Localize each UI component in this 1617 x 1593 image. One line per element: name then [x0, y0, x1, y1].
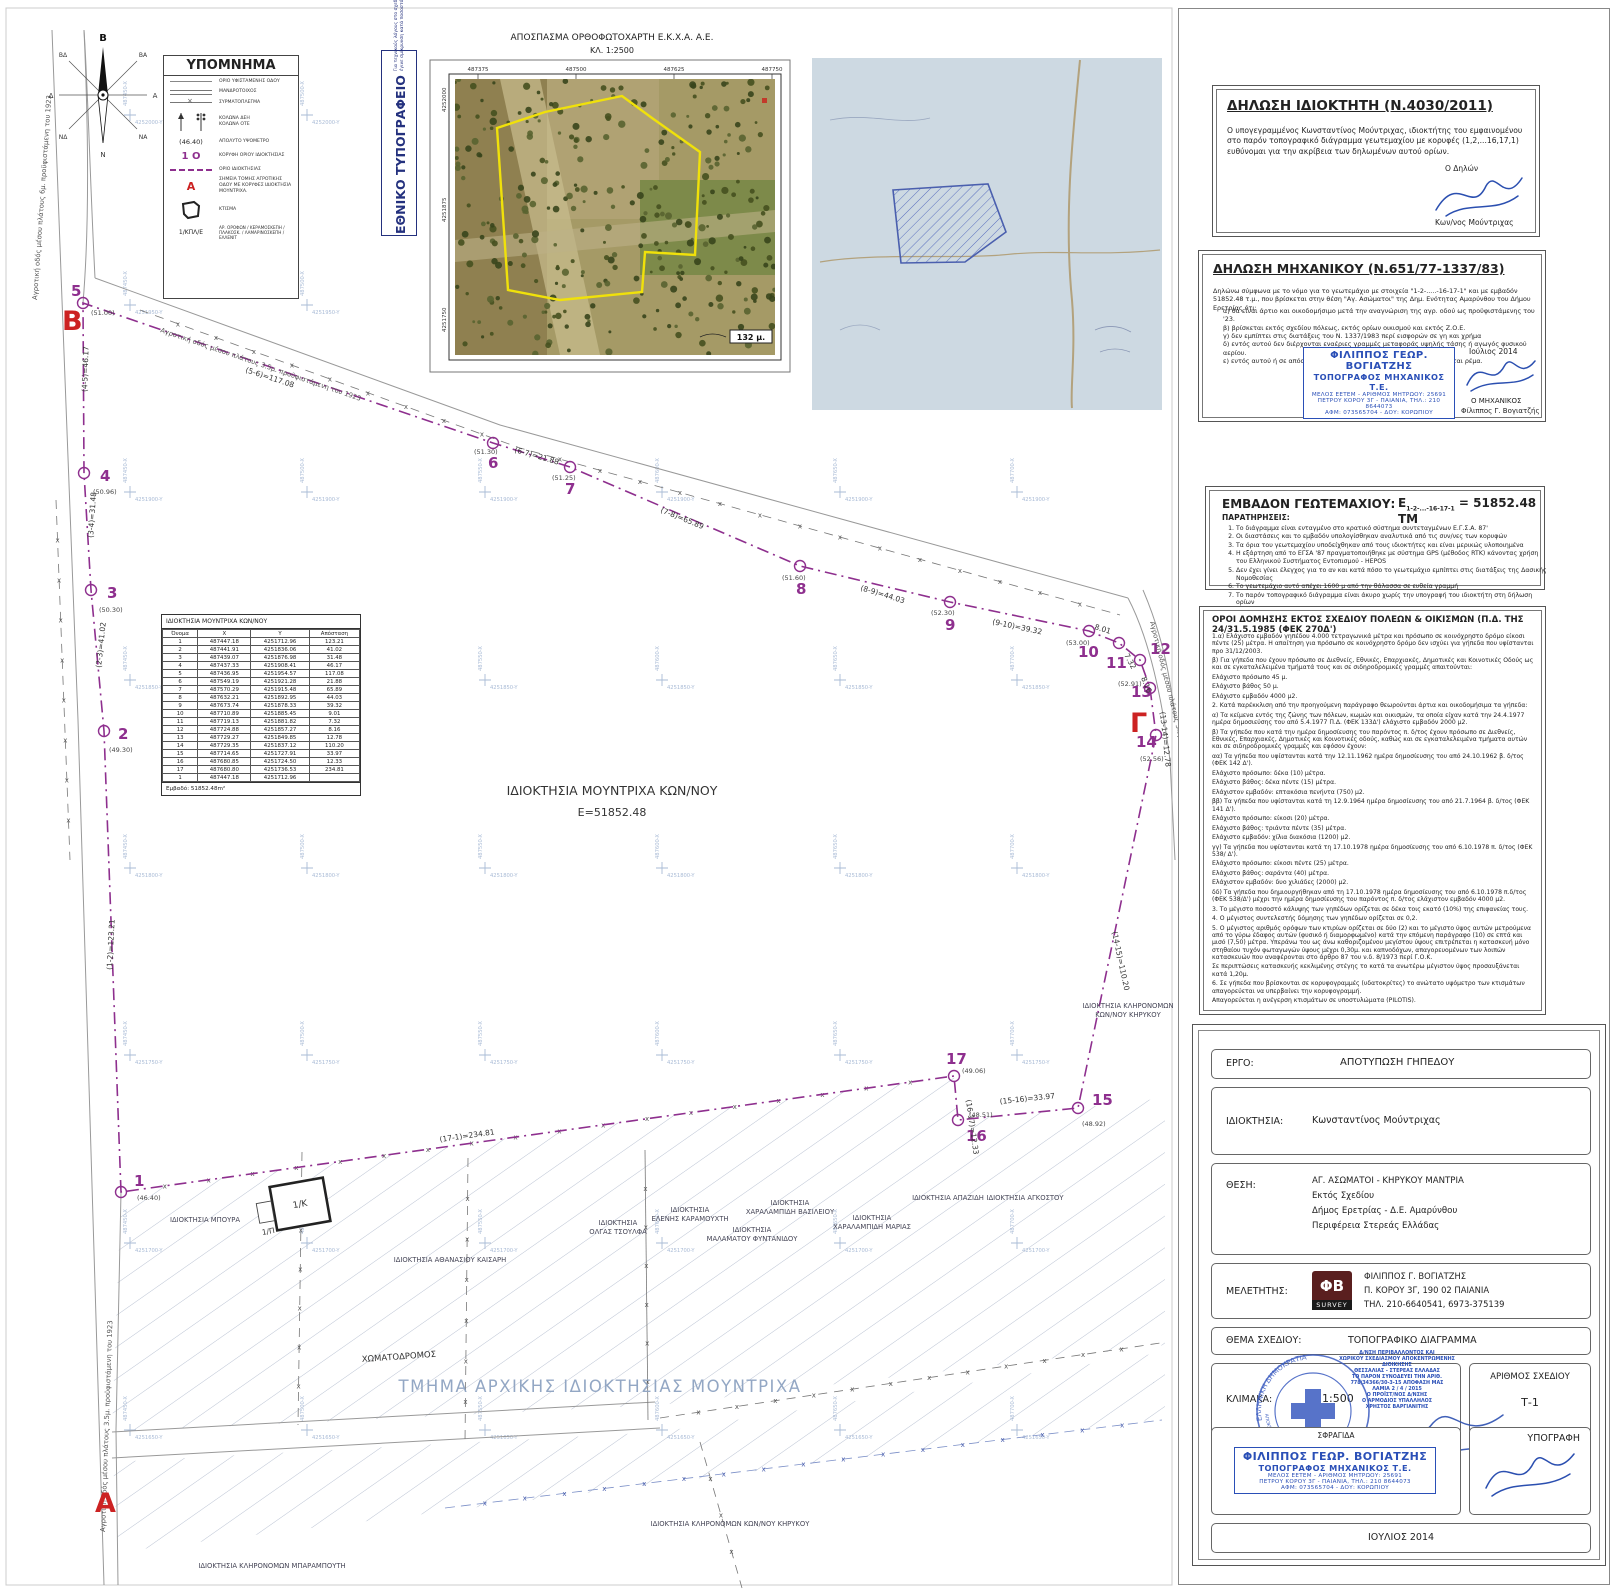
grid-x-label: 487700-X: [1010, 646, 1016, 671]
grid-y-label: 4251850-Y: [667, 685, 695, 691]
fence-x-mark: x: [644, 1262, 648, 1270]
grid-x-label: 487600-X: [655, 646, 661, 671]
neighbor-parcel-label: ΙΔΙΟΚΤΗΣΙΑ ΑΠΑΖΙΔΗ: [912, 1194, 984, 1202]
grid-x-label: 487650-X: [833, 1021, 839, 1046]
coord-table-cell: 17: [163, 766, 198, 774]
fence-x-mark: x: [758, 511, 762, 519]
fence-x-mark: x: [1080, 1426, 1084, 1434]
building-terms-paragraph: Ελάχιστο βάθος: τριάντα πέντε (35) μέτρα…: [1212, 825, 1536, 832]
fence-x-mark: x: [638, 478, 642, 486]
coord-table-cell: 15: [163, 750, 198, 758]
fence-x-mark: x: [722, 1470, 726, 1478]
grid-x-label: 487500-X: [300, 1021, 306, 1046]
coord-table-cell: 21.88: [309, 678, 359, 686]
fence-x-mark: x: [998, 578, 1002, 586]
fence-x-mark: x: [480, 431, 484, 439]
grid-y-label: 4251700-Y: [490, 1248, 518, 1254]
fence-x-mark: x: [602, 1485, 606, 1493]
vertex-elevation: (49.30): [109, 746, 133, 754]
grid-x-label: 487550-X: [478, 458, 484, 483]
grid-x-label: 487450-X: [123, 646, 129, 671]
compass-se-label: ΝΑ: [139, 134, 148, 141]
utility-pole-icon: [168, 111, 214, 133]
fence-x-mark: x: [878, 545, 882, 553]
coord-table-row: 17487680.804251736.53234.81: [163, 766, 360, 774]
fence-x-mark: x: [298, 1305, 302, 1313]
photo-x-tick: 487750: [762, 67, 783, 73]
vertex-number: 17: [946, 1050, 967, 1068]
coord-table-cell: 31.48: [309, 654, 359, 662]
grid-y-label: 4251800-Y: [490, 873, 518, 879]
vertex-elevation: (51.60): [782, 574, 806, 582]
legend-row: ΟΡΙΟ ΙΔΙΟΚΤΗΣΙΑΣ: [164, 164, 298, 175]
grid-x-label: 487450-X: [123, 1021, 129, 1046]
grid-x-label: 487550-X: [478, 1209, 484, 1234]
coord-table-row: 3487439.074251876.9831.48: [163, 654, 360, 662]
coord-table-cell: 4251837.12: [251, 742, 309, 750]
project-title: ΑΠΟΤΥΠΩΣΗ ΓΗΠΕΔΟΥ: [1340, 1057, 1454, 1068]
coord-table-cell: 487729.27: [198, 734, 251, 742]
building-terms-paragraph: 1.α) Ελάχιστο εμβαδόν γηπέδου 4.000 τετρ…: [1212, 633, 1536, 655]
coord-table-cell: 1: [163, 638, 198, 646]
building-terms-paragraph: Ελάχιστο εμβαδόν 4000 μ2.: [1212, 693, 1536, 700]
fence-x-mark: x: [297, 1344, 301, 1352]
aerial-photo: [453, 77, 777, 357]
coord-table-cell: 4251921.28: [251, 678, 309, 686]
coord-table-cell: 8.16: [309, 726, 359, 734]
coord-table-cell: 487729.35: [198, 742, 251, 750]
fence-x-mark: x: [442, 417, 446, 425]
fence-x-mark: x: [65, 777, 69, 785]
subject-value: ΤΟΠΟΓΡΑΦΙΚΟ ΔΙΑΓΡΑΜΜΑ: [1348, 1335, 1477, 1346]
fence-x-mark: x: [921, 1446, 925, 1454]
grid-y-label: 4251700-Y: [135, 1248, 163, 1254]
coord-table-cell: 487441.91: [198, 646, 251, 654]
building-terms-paragraph: Σε περιπτώσεις κατασκευής κεκλιμένης στέ…: [1212, 963, 1536, 978]
fence-x-mark: x: [464, 1357, 468, 1365]
vertex-circle: [565, 462, 576, 473]
legend-row: ΣΥΡΜΑΤΟΠΛΕΓΜΑ: [164, 97, 298, 108]
fence-x-mark: x: [1043, 1357, 1047, 1365]
legend-row: ΟΡΙΟ ΥΦΙΣΤΑΜΕΝΗΣ ΟΔΟΥ: [164, 76, 298, 87]
compass-ne-label: ΒΑ: [139, 52, 148, 59]
fence-x-mark: x: [252, 348, 256, 356]
vertex-elevation: (51.30): [474, 448, 498, 456]
owner-declaration-title: ΔΗΛΩΣΗ ΙΔΙΟΚΤΗΤΗ (Ν.4030/2011): [1227, 98, 1493, 114]
grid-x-label: 487600-X: [655, 458, 661, 483]
vertex-elevation: (49.06): [962, 1067, 986, 1075]
coord-table-cell: 487710.89: [198, 710, 251, 718]
grid-y-label: 4251750-Y: [135, 1060, 163, 1066]
building-terms-paragraph: 2. Κατά παρέκκλιση από την προηγούμενη π…: [1212, 702, 1536, 709]
coord-table-cell: 1: [163, 774, 198, 782]
coord-table-row: 11487719.134251881.827.32: [163, 718, 360, 726]
neighbor-parcel-label: ΙΔΙΟΚΤΗΣΙΑ ΑΘΑΝΑΣΙΟΥ ΚΑΙΣΑΡΗ: [394, 1256, 506, 1264]
issue-date: ΙΟΥΛΙΟΣ 2014: [1212, 1532, 1590, 1543]
coord-table-cell: 487719.13: [198, 718, 251, 726]
fence-x-mark: x: [798, 522, 802, 530]
building-code-sample: 1/ΚΠΛ/Ε: [168, 229, 214, 236]
parcel-area: Ε=51852.48: [578, 806, 647, 819]
fence-x-mark: x: [523, 1495, 527, 1503]
fence-x-mark: x: [958, 567, 962, 575]
coord-table-cell: 4251712.96: [251, 638, 309, 646]
coord-table-cell: 4251857.27: [251, 726, 309, 734]
distance-label: (15-16)=33.97: [999, 1091, 1055, 1106]
grid-y-label: 4251750-Y: [667, 1060, 695, 1066]
legend-row: 1 Ο ΚΟΡΥΦΗ ΟΡΙΟΥ ΙΔΙΟΚΤΗΣΙΑΣ: [164, 148, 298, 164]
location-line: ΑΓ. ΑΣΩΜΑΤΟΙ - ΚΗΡΥΚΟΥ ΜΑΝΤΡΙΑ: [1312, 1174, 1464, 1189]
coord-table-cell: 487447.18: [198, 638, 251, 646]
legend-row: Α ΣΗΜΕΙΑ ΤΟΜΗΣ ΑΓΡΟΤΙΚΗΣ ΟΔΟΥ ΜΕ ΚΟΡΥΦΕΣ…: [164, 175, 298, 197]
fence-x-mark: x: [1038, 589, 1042, 597]
owner-row: ΙΔΙΟΚΤΗΣΙΑ: Κωνσταντίνος Μούντριχας: [1211, 1087, 1591, 1155]
fence-x-mark: x: [404, 403, 408, 411]
grid-y-label: 4251650-Y: [667, 1435, 695, 1441]
coord-table-cell: 11: [163, 718, 198, 726]
neighbor-parcel-label: ΙΔΙΟΚΤΗΣΙΑ ΚΛΗΡΟΝΟΜΩΝ ΜΠΑΡΑΜΠΟΥΤΗ: [198, 1562, 345, 1570]
vertex-elevation: (51.00): [91, 309, 115, 317]
building-icon: [168, 200, 214, 220]
vertex-number: 1: [134, 1172, 144, 1190]
grid-y-label: 4252000-Y: [312, 120, 340, 126]
legend-row: ΜΑΝΔΡΟΤΟΙΧΟΣ: [164, 87, 298, 98]
grid-y-label: 4251950-Y: [312, 310, 340, 316]
fence-x-mark: x: [1078, 600, 1082, 608]
observation-note: Το παρόν τοπογραφικό διάγραμμα είναι άκυ…: [1236, 592, 1548, 608]
owner-declaration-body: Ο υπογεγραμμένος Κωνσταντίνος Μούντριχας…: [1227, 126, 1527, 157]
fence-x-mark: x: [163, 1182, 167, 1190]
old-map-panel: [812, 58, 1162, 410]
fence-x-mark: x: [328, 376, 332, 384]
coord-table-cell: 487680.80: [198, 766, 251, 774]
section-letter-G: Γ: [1130, 708, 1147, 739]
coord-table-cell: 44.03: [309, 694, 359, 702]
fence-x-mark: x: [465, 1195, 469, 1203]
fence-x-mark: x: [678, 489, 682, 497]
coord-table-cell: 487439.07: [198, 654, 251, 662]
grid-x-label: 487700-X: [1010, 458, 1016, 483]
notes-title: ΠΑΡΑΤΗΡΗΣΕΙΣ:: [1222, 513, 1290, 522]
coord-table-cell: 4: [163, 662, 198, 670]
legend-row: 1/ΚΠΛ/Ε ΑΡ. ΟΡΟΦΩΝ / ΚΕΡΑΜΟΣΚΕΠΗ / ΠΛΑΚΟ…: [164, 222, 298, 243]
fence-x-mark: x: [645, 1339, 649, 1347]
engineer-declaration-item: β) βρίσκεται εκτός σχεδίου πόλεως, εκτός…: [1223, 324, 1541, 332]
building-terms-paragraph: Ελάχιστο βάθος: σαράντα (40) μέτρα.: [1212, 870, 1536, 877]
coord-table-row: 1487447.184251712.96123.21: [163, 638, 360, 646]
coord-table-cell: 4251954.57: [251, 670, 309, 678]
grid-y-label: 4251650-Y: [1022, 1435, 1050, 1441]
coord-table-header-cell: Y: [251, 630, 309, 638]
vertex-number: 5: [71, 282, 81, 300]
grid-y-label: 4251800-Y: [135, 873, 163, 879]
coord-table-cell: 39.32: [309, 702, 359, 710]
vertex-elevation: (52.30): [931, 609, 955, 617]
engineer-signature: [1461, 351, 1541, 395]
coord-table-cell: 487680.85: [198, 758, 251, 766]
photo-scalebar-label: 132 μ.: [737, 333, 765, 342]
coord-table-cell: 4251836.06: [251, 646, 309, 654]
coord-table-cell: 4251712.96: [251, 774, 309, 782]
fence-x-mark: x: [463, 1398, 467, 1406]
building-terms-body: 1.α) Ελάχιστο εμβαδόν γηπέδου 4.000 τετρ…: [1212, 633, 1536, 1007]
legend-row: ΚΟΛΩΝΑ ΔΕΗΚΟΛΩΝΑ ΟΤΕ: [164, 108, 298, 135]
coord-table-row: 16487680.854251724.5012.33: [163, 758, 360, 766]
grid-y-label: 4251750-Y: [490, 1060, 518, 1066]
coord-table-cell: 8: [163, 694, 198, 702]
coord-table-cell: 487549.19: [198, 678, 251, 686]
engineer-declaration-item: γ) δεν εμπίπτει στις διατάξεις του Ν. 13…: [1223, 332, 1541, 340]
building-terms-paragraph: 3. Το μέγιστο ποσοστό κάλυψης των γηπέδω…: [1212, 906, 1536, 913]
engineer-signer-label: Ο ΜΗΧΑΝΙΚΟΣ: [1471, 397, 1521, 405]
fence-x-mark: x: [708, 1475, 712, 1483]
coord-table-cell: 9: [163, 702, 198, 710]
fence-x-mark: x: [296, 1383, 300, 1391]
fence-x-mark: x: [718, 500, 722, 508]
coord-table-row: 2487441.914251836.0641.02: [163, 646, 360, 654]
coord-table-cell: 4251915.48: [251, 686, 309, 694]
coord-table-cell: 4251881.82: [251, 718, 309, 726]
date-box: ΙΟΥΛΙΟΣ 2014: [1211, 1523, 1591, 1553]
coord-table-cell: 123.21: [309, 638, 359, 646]
neighbor-parcel-label: ΙΔΙΟΚΤΗΣΙΑ ΚΛΗΡΟΝΟΜΩΝ: [1082, 1002, 1173, 1010]
fence-x-mark: x: [773, 1397, 777, 1405]
coord-table-header-cell: Απόσταση: [309, 630, 359, 638]
compass-south-label: Ν: [100, 151, 105, 159]
neighbor-parcel-label: ΙΔΙΟΚΤΗΣΙΑ: [671, 1206, 710, 1214]
grid-x-label: 487450-X: [123, 834, 129, 859]
building-terms-paragraph: γγ) Τα γήπεδα που υφίστανται κατά τη 17.…: [1212, 844, 1536, 859]
grid-x-label: 487550-X: [478, 1021, 484, 1046]
grid-y-label: 4251650-Y: [135, 1435, 163, 1441]
photo-red-mark: [762, 98, 767, 103]
coord-table-cell: 487447.18: [198, 774, 251, 782]
photo-y-tick: 4251875: [442, 197, 448, 222]
grid-y-label: 4251650-Y: [312, 1435, 340, 1441]
photo-x-tick: 487375: [468, 67, 489, 73]
coord-table-cell: 487724.88: [198, 726, 251, 734]
observation-note: Η εξάρτηση από το ΕΓΣΑ '87 πραγματοποιήθ…: [1236, 550, 1548, 566]
grid-x-label: 487700-X: [1010, 1021, 1016, 1046]
fence-x-mark: x: [645, 1301, 649, 1309]
fence-x-mark: x: [290, 362, 294, 370]
distance-label: (4-5)=46.17: [80, 346, 91, 392]
fence-x-mark: x: [801, 1461, 805, 1469]
fence-x-mark: x: [1040, 1431, 1044, 1439]
surveyor-row: ΜΕΛΕΤΗΤΗΣ: ΦΒ SURVEY ΦΙΛΙΠΠΟΣ Γ. ΒΟΓΙΑΤΖ…: [1211, 1263, 1591, 1319]
neighbor-parcel-label: ΙΔΙΟΚΤΗΣΙΑ ΚΛΗΡΟΝΟΜΩΝ ΚΩΝ/ΝΟΥ ΚΗΡΥΚΟΥ: [651, 1520, 811, 1528]
section-letter-sample: Α: [168, 180, 214, 193]
photo-y-tick: 4252000: [442, 87, 448, 112]
fence-x-mark: x: [598, 467, 602, 475]
fence-x-mark: x: [729, 1548, 733, 1556]
area-title: ΕΜΒΑΔΟΝ ΓΕΩΤΕΜΑΧΙΟΥ:: [1222, 497, 1395, 511]
building-terms-paragraph: 4. Ο μέγιστος συντελεστής δόμησης των γη…: [1212, 915, 1536, 922]
grid-y-label: 4251900-Y: [312, 497, 340, 503]
stamp-box: ΣΦΡΑΓΙΔΑ ΦΙΛΙΠΠΟΣ ΓΕΩΡ. ΒΟΓΙΑΤΖΗΣ ΤΟΠΟΓΡ…: [1211, 1427, 1461, 1515]
fence-x-mark: x: [850, 1386, 854, 1394]
observation-note: Δεν έχει γίνει έλεγχος για το αν και κατ…: [1236, 567, 1548, 583]
printing-note-title: ΕΘΝΙΚΟ ΤΥΠΟΓΡΑΦΕΙΟ: [393, 75, 408, 234]
distance-label: (2-3)=41.02: [94, 621, 108, 668]
building-terms-paragraph: ββ) Τα γήπεδα που υφίστανται κατά τη 12.…: [1212, 798, 1536, 813]
grid-x-label: 487600-X: [655, 834, 661, 859]
grid-y-label: 4252000-Y: [135, 120, 163, 126]
coord-table-cell: 117.08: [309, 670, 359, 678]
location-line: Εκτός Σχεδίου: [1312, 1189, 1464, 1204]
engineer-stamp: ΦΙΛΙΠΠΟΣ ΓΕΩΡ. ΒΟΓΙΑΤΖΗΣ ΤΟΠΟΓΡΑΦΟΣ ΜΗΧΑ…: [1303, 347, 1455, 419]
building-terms-paragraph: αα) Τα γήπεδα που υφίστανται κατά την 12…: [1212, 753, 1536, 768]
vertex-number: 7: [565, 480, 575, 498]
fence-x-mark: x: [483, 1500, 487, 1508]
coord-table-row: 14487729.354251837.12110.20: [163, 742, 360, 750]
coord-table-cell: 7: [163, 686, 198, 694]
topographic-sheet: 487450-X4252000-Y487450-X4251950-Y487450…: [0, 0, 1617, 1593]
area-formula: Ε1-2-...-16-17-1 = 51852.48 ΤΜ: [1398, 496, 1544, 526]
notes-list: Το διάγραμμα είναι ενταγμένο στο κρατικό…: [1236, 525, 1548, 608]
elevation-sample: (46.40): [168, 138, 214, 146]
engineer-declaration: ΔΗΛΩΣΗ ΜΗΧΑΝΙΚΟΥ (Ν.651/77-1337/83) Δηλώ…: [1198, 250, 1546, 422]
coord-table-header-cell: Όνομα: [163, 630, 198, 638]
coord-table-cell: 33.97: [309, 750, 359, 758]
coord-table-cell: 5: [163, 670, 198, 678]
coord-table-cell: 14: [163, 742, 198, 750]
fence-x-mark: x: [642, 1480, 646, 1488]
fence-x-mark: x: [366, 389, 370, 397]
grid-y-label: 4251850-Y: [490, 685, 518, 691]
location-row: ΘΕΣΗ: ΑΓ. ΑΣΩΜΑΤΟΙ - ΚΗΡΥΚΟΥ ΜΑΝΤΡΙΑΕκτό…: [1211, 1163, 1591, 1255]
coord-table-row: 8487632.214251892.9544.03: [163, 694, 360, 702]
fence-x-mark: x: [682, 1475, 686, 1483]
coordinate-table-title: ΙΔΙΟΚΤΗΣΙΑ ΜΟΥΝΤΡΙΧΑ ΚΩΝ/ΝΟΥ: [162, 615, 360, 629]
building-terms-paragraph: Απαγορεύεται η ανέγερση κτισμάτων σε υπο…: [1212, 997, 1536, 1004]
grid-x-label: 487600-X: [655, 1021, 661, 1046]
grid-x-label: 487700-X: [1010, 834, 1016, 859]
coord-table-header-cell: X: [198, 630, 251, 638]
grid-x-label: 487600-X: [655, 1396, 661, 1421]
building-terms-paragraph: β) Για γήπεδα που έχουν πρόσωπο σε Διεθν…: [1212, 657, 1536, 672]
observation-note: Το διάγραμμα είναι ενταγμένο στο κρατικό…: [1236, 525, 1548, 533]
grid-x-label: 487700-X: [1010, 1396, 1016, 1421]
compass-west-label: Δ: [49, 92, 54, 100]
coord-table-row: 5487436.954251954.57117.08: [163, 670, 360, 678]
fence-x-mark: x: [841, 1456, 845, 1464]
coord-table-cell: 3: [163, 654, 198, 662]
engineer-signer-name: Φίλιππος Γ. Βογιατζής: [1461, 407, 1540, 415]
fence-x-mark: x: [62, 697, 66, 705]
coord-table-cell: 4251724.50: [251, 758, 309, 766]
owner-signer-name: Κων/νος Μούντριχας: [1435, 218, 1514, 227]
grid-x-label: 487500-X: [300, 1396, 306, 1421]
grid-x-label: 487500-X: [300, 271, 306, 296]
photo-x-tick: 487625: [664, 67, 685, 73]
boundary-line-icon: [168, 169, 214, 171]
coord-table-cell: 13: [163, 734, 198, 742]
building-terms-paragraph: 6. Σε γήπεδα που βρίσκονται σε κορυφογρα…: [1212, 980, 1536, 995]
grid-y-label: 4251800-Y: [667, 873, 695, 879]
wire-fence-icon: [168, 102, 214, 103]
fence-x-mark: x: [464, 1317, 468, 1325]
photo-y-tick: 4251750: [442, 307, 448, 332]
coord-table-cell: 4251885.45: [251, 710, 309, 718]
coord-table-cell: 4251908.41: [251, 662, 309, 670]
neighbor-parcel-label: ΜΑΛΑΜΑΤΟΥ ΦΥΝΤΑΝΙΔΟΥ: [707, 1235, 799, 1243]
fence-x-mark: x: [918, 556, 922, 564]
grid-y-label: 4251900-Y: [845, 497, 873, 503]
coord-table-cell: 10: [163, 710, 198, 718]
road-line-icon: [168, 81, 214, 82]
vertex-elevation: (48.92): [1082, 1120, 1106, 1128]
fence-x-mark: x: [57, 577, 61, 585]
coord-table-cell: 4251876.98: [251, 654, 309, 662]
grid-x-label: 487450-X: [123, 271, 129, 296]
compass-nw-label: ΒΔ: [59, 52, 68, 59]
owner-declaration: ΔΗΛΩΣΗ ΙΔΙΟΚΤΗΤΗ (Ν.4030/2011) Ο υπογεγρ…: [1212, 85, 1540, 237]
compass-icon: Β Ν Α Δ ΒΑ ΒΔ ΝΑ ΝΔ: [49, 33, 158, 159]
fence-x-mark: x: [735, 1403, 739, 1411]
distance-label: 8.01: [1093, 622, 1112, 636]
neighbor-parcel-label: ΙΔΙΟΚΤΗΣΙΑ ΑΓΚΟΣΤΟΥ: [986, 1194, 1064, 1202]
section-letter-A: A: [95, 1488, 116, 1519]
coord-table-row: 12487724.884251857.278.16: [163, 726, 360, 734]
coordinate-table-header: ΌνομαXYΑπόσταση: [163, 630, 360, 638]
vertex-number: 9: [945, 616, 955, 634]
grid-x-label: 487650-X: [833, 646, 839, 671]
building-terms-paragraph: Ελάχιστον εμβαδόν: επτακόσια πενήντα (75…: [1212, 789, 1536, 796]
grid-x-label: 487450-X: [123, 458, 129, 483]
coord-table-cell: 4251878.33: [251, 702, 309, 710]
compass-sw-label: ΝΔ: [59, 134, 68, 141]
coord-table-cell: 7.32: [309, 718, 359, 726]
coord-table-cell: 4251849.85: [251, 734, 309, 742]
coordinate-table: ΙΔΙΟΚΤΗΣΙΑ ΜΟΥΝΤΡΙΧΑ ΚΩΝ/ΝΟΥ ΌνομαXYΑπόσ…: [161, 614, 361, 796]
grid-y-label: 4251700-Y: [845, 1248, 873, 1254]
printing-note: ΕΘΝΙΚΟ ΤΥΠΟΓΡΑΦΕΙΟ Για τεχνικούς λόγους …: [381, 50, 417, 236]
legend: ΥΠΟΜΝΗΜΑ ΟΡΙΟ ΥΦΙΣΤΑΜΕΝΗΣ ΟΔΟΥ ΜΑΝΔΡΟΤΟΙ…: [163, 55, 299, 299]
title-block-signature: [1476, 1444, 1586, 1504]
distance-label: (7-8)=65.89: [659, 506, 705, 532]
compass-north-label: Β: [99, 33, 107, 44]
grid-y-label: 4251700-Y: [667, 1248, 695, 1254]
grid-y-label: 4251850-Y: [135, 685, 163, 691]
coord-table-cell: 46.17: [309, 662, 359, 670]
grid-y-label: 4251900-Y: [1022, 497, 1050, 503]
distance-label: (6-7)=21.88: [513, 445, 560, 466]
grid-y-label: 4251850-Y: [845, 685, 873, 691]
project-block: ΕΡΓΟ: ΑΠΟΤΥΠΩΣΗ ΓΗΠΕΔΟΥ ΙΔΙΟΚΤΗΣΙΑ: Κωνσ…: [1192, 1024, 1606, 1566]
building-terms-paragraph: β) Τα γήπεδα που κατά την ημέρα δημοσίευ…: [1212, 729, 1536, 751]
coord-table-cell: 487570.29: [198, 686, 251, 694]
fence-x-mark: x: [733, 1103, 737, 1111]
grid-x-label: 487650-X: [833, 458, 839, 483]
grid-x-label: 487450-X: [123, 1396, 129, 1421]
fence-x-mark: x: [59, 617, 63, 625]
road-label: Αγροτική οδός μέσου πλάτους 6μ. προϋφιστ…: [31, 95, 53, 300]
vertex-number: 6: [488, 454, 498, 472]
surveyor-lines: ΦΙΛΙΠΠΟΣ Γ. ΒΟΓΙΑΤΖΗΣΠ. ΚΟΡΟΥ 3Γ, 190 02…: [1364, 1270, 1504, 1312]
fence-line: [56, 500, 70, 860]
coord-table-cell: 12: [163, 726, 198, 734]
parcel-label: ΙΔΙΟΚΤΗΣΙΑ ΜΟΥΝΤΡΙΧΑ ΚΩΝ/ΝΟΥ: [507, 783, 718, 798]
vertex-number: 2: [118, 725, 128, 743]
vertex-number: 8: [796, 580, 806, 598]
grid-x-label: 487500-X: [300, 834, 306, 859]
vertex-elevation: (52.56): [1140, 755, 1164, 763]
surveyor-line: ΦΙΛΙΠΠΟΣ Γ. ΒΟΓΙΑΤΖΗΣ: [1364, 1270, 1504, 1284]
vertex-number: 15: [1092, 1091, 1113, 1109]
photo-x-tick: 487500: [566, 67, 587, 73]
coord-table-cell: 41.02: [309, 646, 359, 654]
